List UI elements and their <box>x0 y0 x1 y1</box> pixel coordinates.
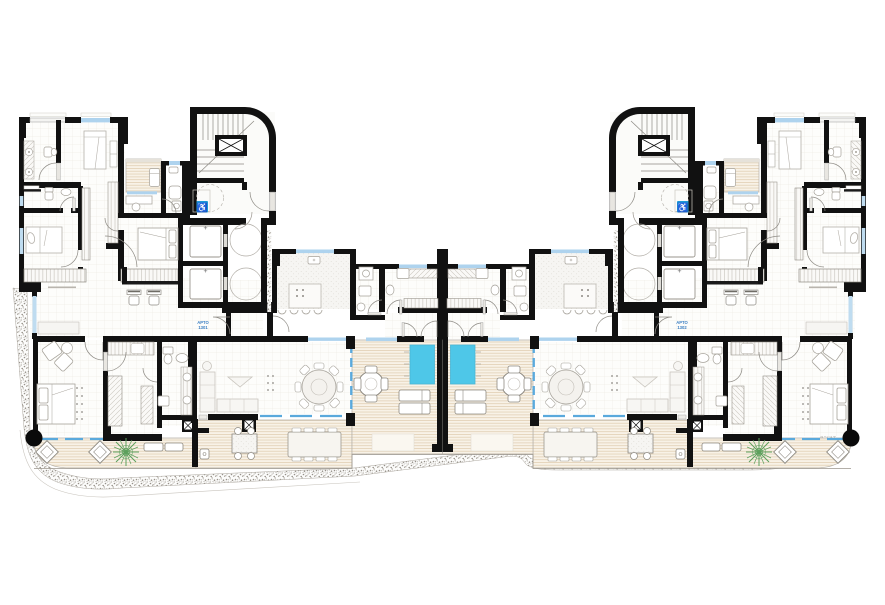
svg-text:♿: ♿ <box>677 202 688 213</box>
svg-text:♿: ♿ <box>197 202 208 213</box>
svg-text:1302: 1302 <box>677 325 687 330</box>
svg-text:1301: 1301 <box>198 325 208 330</box>
